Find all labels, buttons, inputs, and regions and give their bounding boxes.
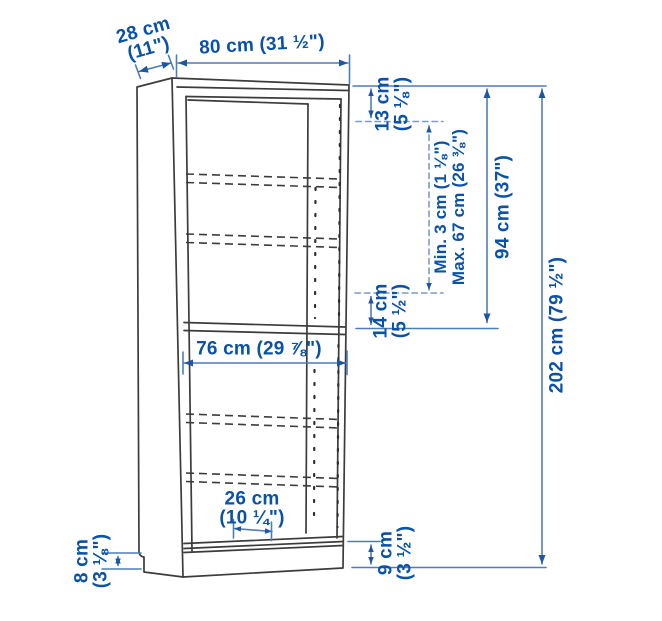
dim-shelf-max: Max. 67 cm (26 ⅜") [450,129,468,285]
dim-base-left-value: 8 cm [73,534,92,589]
dim-base-left-label: 8 cm (3 ⅛") [73,534,112,589]
dim-shelf-depth-arrow [234,529,272,532]
dim-top-gap-imperial: (5 ⅛") [393,77,412,132]
dim-top-gap-value: 13 cm [374,77,393,132]
peg-holes [314,105,340,527]
back-right-corner [306,104,308,533]
shelf-dashed-4b [186,482,340,488]
dim-total-height-label: 202 cm (79 ½") [547,257,566,393]
peg-column-back-lower [314,370,315,525]
dim-mid-gap-label: 14 cm (5 ½") [372,284,411,339]
dim-shelf-depth-imperial: (10 ¼") [219,509,284,528]
dim-shelf-depth-value: 26 cm [219,490,284,509]
dim-depth-arrow [139,63,171,72]
dim-shelf-min: Min. 3 cm (1 ⅛") [432,129,450,285]
dim-base-right-label: 9 cm (3 ½") [377,526,416,581]
shelf-dashed-3a [186,414,340,420]
dim-shelf-range-label: Min. 3 cm (1 ⅛") Max. 67 cm (26 ⅜") [432,129,468,285]
dim-shelf-depth-label: 26 cm (10 ¼") [219,490,284,529]
inner-left-edge [186,97,192,552]
middle-shelf-bottom [184,331,345,335]
dim-mid-gap-imperial: (5 ½") [391,284,410,339]
top-ceiling-edge [186,97,341,100]
shelf-dashed-1b [186,183,340,188]
dimension-lines [102,55,546,569]
dim-top-gap-label: 13 cm (5 ⅛") [374,77,413,132]
dim-inner-width-value: 76 cm (29 ⅞") [196,339,322,358]
middle-shelf-top [184,323,345,328]
bottom-shelf-front [184,546,343,553]
top-back-edge [188,100,308,104]
dim-inner-width-label: 76 cm (29 ⅞") [196,339,322,358]
shelf-dashed-4a [186,473,340,479]
shelf-dashed-1a [186,174,340,179]
front-left-edge [172,78,183,577]
dim-base-left-imperial: (3 ⅛") [92,534,111,589]
peg-column-back-upper [315,188,316,318]
dim-base-right-value: 9 cm [377,526,396,581]
shelf-dashed-2b [186,243,340,248]
tick-depth-right [169,56,174,70]
dim-mid-gap-value: 14 cm [372,284,391,339]
bookcase-diagram: 28 cm (11") 80 cm (31 ½") 13 cm (5 ⅛") M… [0,0,662,621]
inner-right-edge [337,99,341,538]
shelf-dashed-3b [186,423,340,429]
dim-base-right-imperial: (3 ½") [396,526,415,581]
shelf-dashed-2a [186,234,340,239]
dim-upper-height-label: 94 cm (37") [493,155,512,259]
top-edge-inner [177,87,348,91]
dim-upper-height-value: 94 cm (37") [493,155,512,259]
dim-total-height-value: 202 cm (79 ½") [547,257,566,393]
